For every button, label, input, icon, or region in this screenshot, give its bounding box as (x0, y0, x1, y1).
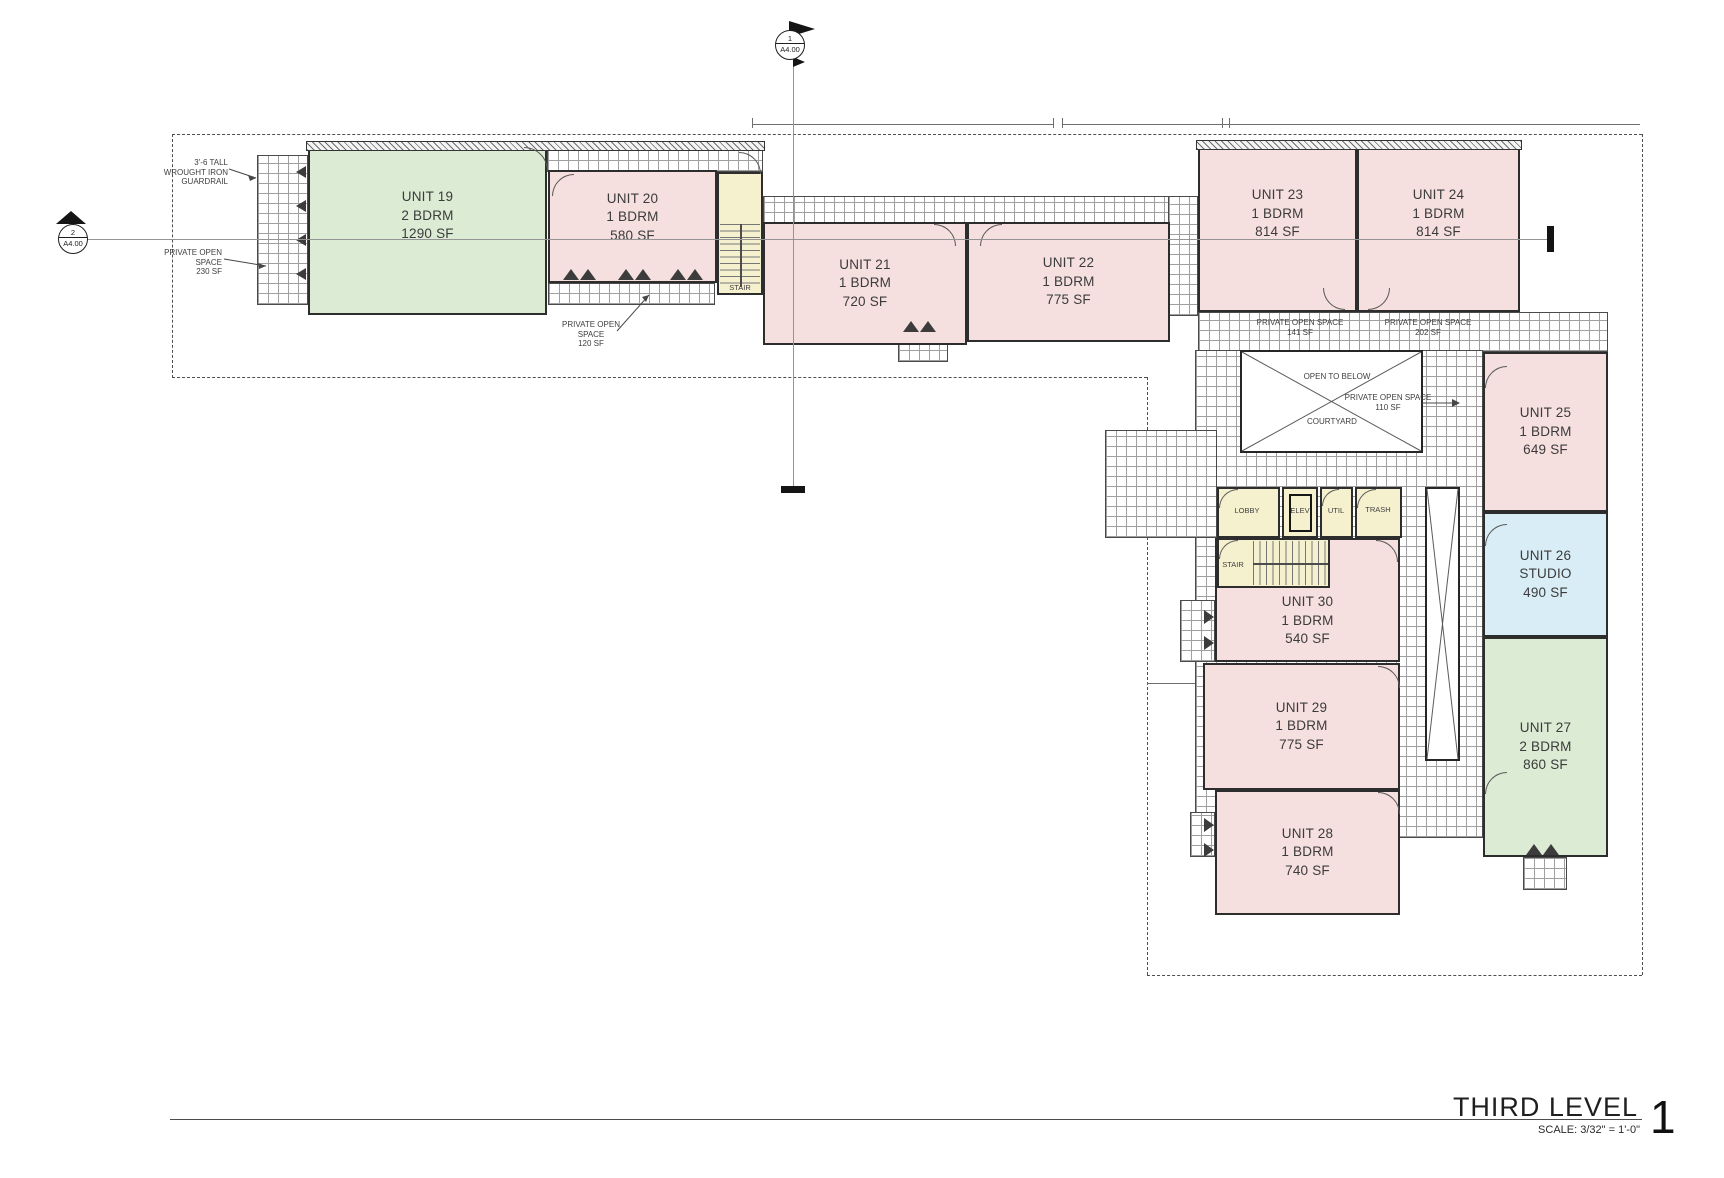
note-line: PRIVATE OPEN (562, 320, 620, 329)
boundary-midbottom-dashed (172, 377, 1147, 378)
unit-bed: 1 BDRM (1042, 273, 1094, 292)
balcony-unit-27 (1523, 857, 1567, 890)
roof-tick (1062, 118, 1063, 128)
section-sheet: A4.00 (776, 44, 804, 54)
elev-label: ELEV (1281, 507, 1319, 515)
note-line: GUARDRAIL (181, 177, 228, 186)
section-marker-top: 1 A4.00 (775, 30, 805, 60)
note-line: SPACE (578, 330, 605, 339)
unit-19-room: UNIT 19 2 BDRM 1290 SF (308, 143, 547, 315)
roof-tick (752, 118, 753, 128)
unit-sf: 540 SF (1285, 630, 1330, 649)
window-glyph (670, 269, 686, 280)
unit-name: UNIT 24 (1413, 186, 1464, 205)
window-glyph (1204, 843, 1214, 857)
unit-sf: 775 SF (1279, 736, 1324, 755)
private-open-space-202: PRIVATE OPEN SPACE 202 SF (1378, 318, 1478, 337)
open-shaft-strip (1425, 487, 1460, 761)
section-1-end-bar (781, 486, 805, 493)
unit-sf: 860 SF (1523, 756, 1568, 775)
roof-tick (1053, 118, 1054, 128)
unit-bed: 2 BDRM (1519, 738, 1571, 757)
window-glyph (563, 269, 579, 280)
unit-bed: 1 BDRM (839, 274, 891, 293)
open-space-unit-20 (548, 283, 715, 305)
private-open-space-230: PRIVATE OPEN SPACE 230 SF (150, 248, 222, 277)
note-line: 141 SF (1287, 328, 1313, 337)
note-line: SPACE (195, 258, 222, 267)
roof-tick (1229, 118, 1230, 128)
unit-name: UNIT 25 (1520, 404, 1571, 423)
window-glyph (920, 321, 936, 332)
courtyard-label: COURTYARD (1287, 417, 1377, 427)
stair-treads (720, 224, 760, 287)
guardrail-note: 3'-6 TALL WROUGHT IRON GUARDRAIL (140, 158, 228, 187)
stair-upper-label: STAIR (717, 284, 763, 292)
section-number: 1 (776, 31, 804, 44)
unit-name: UNIT 30 (1282, 593, 1333, 612)
private-open-space-120: PRIVATE OPEN SPACE 120 SF (546, 320, 636, 349)
floor-plan-canvas: UNIT 19 2 BDRM 1290 SF UNIT 20 1 BDRM 58… (0, 0, 1724, 1178)
window-glyph (580, 269, 596, 280)
note-line: PRIVATE OPEN SPACE (1257, 318, 1344, 327)
window-glyph (296, 166, 306, 178)
unit-24-room: UNIT 24 1 BDRM 814 SF (1357, 142, 1520, 312)
roof-line (752, 124, 1053, 125)
note-line: PRIVATE OPEN SPACE (1385, 318, 1472, 327)
unit-name: UNIT 26 (1520, 547, 1571, 566)
unit-bed: 1 BDRM (1281, 612, 1333, 631)
roof-line (1062, 124, 1640, 125)
note-line: 120 SF (578, 339, 604, 348)
window-glyph (1526, 844, 1542, 855)
unit-name: UNIT 27 (1520, 719, 1571, 738)
boundary-top-dashed (172, 134, 1642, 135)
window-glyph (1204, 610, 1214, 624)
section-marker-left: 2 A4.00 (58, 224, 88, 254)
note-line: WROUGHT IRON (164, 168, 228, 177)
unit-bed: 1 BDRM (1412, 205, 1464, 224)
unit-bed: 1 BDRM (606, 208, 658, 227)
sheet-scale: SCALE: 3/32" = 1'-0" (1408, 1124, 1640, 1136)
unit-sf: 1290 SF (401, 225, 453, 244)
window-glyph (1204, 636, 1214, 650)
section-number: 2 (59, 225, 87, 238)
unit-name: UNIT 20 (607, 190, 658, 209)
title-underline (170, 1119, 1642, 1120)
unit-sf: 649 SF (1523, 441, 1568, 460)
note-line: 3'-6 TALL (194, 158, 228, 167)
section-1-line (793, 60, 794, 487)
unit-name: UNIT 19 (402, 188, 453, 207)
stair-rail (740, 224, 742, 287)
note-line: PRIVATE OPEN SPACE (1345, 393, 1432, 402)
unit-name: UNIT 21 (839, 256, 890, 275)
window-glyph (296, 200, 306, 212)
note-line: 230 SF (196, 267, 222, 276)
util-label: UTIL (1318, 507, 1354, 515)
section-2-line (88, 239, 1548, 240)
unit-name: UNIT 22 (1043, 254, 1094, 273)
window-glyph (635, 269, 651, 280)
open-to-below-label: OPEN TO BELOW (1282, 372, 1392, 382)
stair-treads (1253, 541, 1328, 585)
unit-sf: 775 SF (1046, 291, 1091, 310)
unit-sf: 490 SF (1523, 584, 1568, 603)
walkway-units-21-22 (763, 196, 1183, 224)
unit-bed: 1 BDRM (1519, 423, 1571, 442)
note-line: 110 SF (1375, 403, 1400, 412)
window-glyph (903, 321, 919, 332)
wall-band-units-23-24 (1196, 140, 1522, 150)
unit-bed: 1 BDRM (1251, 205, 1303, 224)
unit-27-room: UNIT 27 2 BDRM 860 SF (1483, 637, 1608, 857)
unit-bed: STUDIO (1519, 565, 1571, 584)
window-glyph (687, 269, 703, 280)
window-glyph (618, 269, 634, 280)
walkway-units-22-23 (1168, 196, 1198, 316)
window-glyph (296, 268, 306, 280)
unit-name: UNIT 29 (1276, 699, 1327, 718)
unit-29-room: UNIT 29 1 BDRM 775 SF (1203, 663, 1400, 790)
private-open-space-110: PRIVATE OPEN SPACE 110 SF (1338, 393, 1438, 412)
section-2-end-bar (1547, 226, 1554, 252)
unit-23-room: UNIT 23 1 BDRM 814 SF (1198, 142, 1357, 312)
roof-tick (1222, 118, 1223, 128)
section-sheet: A4.00 (59, 238, 87, 248)
note-line: PRIVATE OPEN (164, 248, 222, 257)
trash-label: TRASH (1355, 506, 1401, 514)
entry-deck-lobby (1105, 430, 1217, 538)
stair-upper-room (717, 172, 763, 295)
window-glyph (1543, 844, 1559, 855)
unit-sf: 580 SF (610, 227, 655, 246)
unit-bed: 2 BDRM (401, 207, 453, 226)
private-open-space-141: PRIVATE OPEN SPACE 141 SF (1250, 318, 1350, 337)
unit-bed: 1 BDRM (1275, 717, 1327, 736)
unit-name: UNIT 28 (1282, 825, 1333, 844)
unit-name: UNIT 23 (1252, 186, 1303, 205)
unit-bed: 1 BDRM (1281, 843, 1333, 862)
boundary-right-dashed (1642, 134, 1643, 975)
window-glyph (1204, 818, 1214, 832)
lobby-label: LOBBY (1222, 507, 1272, 515)
note-line: 202 SF (1415, 328, 1441, 337)
boundary-bottom-dashed (1147, 975, 1642, 976)
unit-sf: 740 SF (1285, 862, 1330, 881)
stair-lower-label: STAIR (1213, 561, 1253, 569)
unit-sf: 720 SF (843, 293, 888, 312)
stair-rail (1253, 563, 1328, 565)
section-marker-flag (56, 211, 86, 224)
drawing-number: 1 (1650, 1090, 1676, 1144)
unit-28-room: UNIT 28 1 BDRM 740 SF (1215, 790, 1400, 915)
